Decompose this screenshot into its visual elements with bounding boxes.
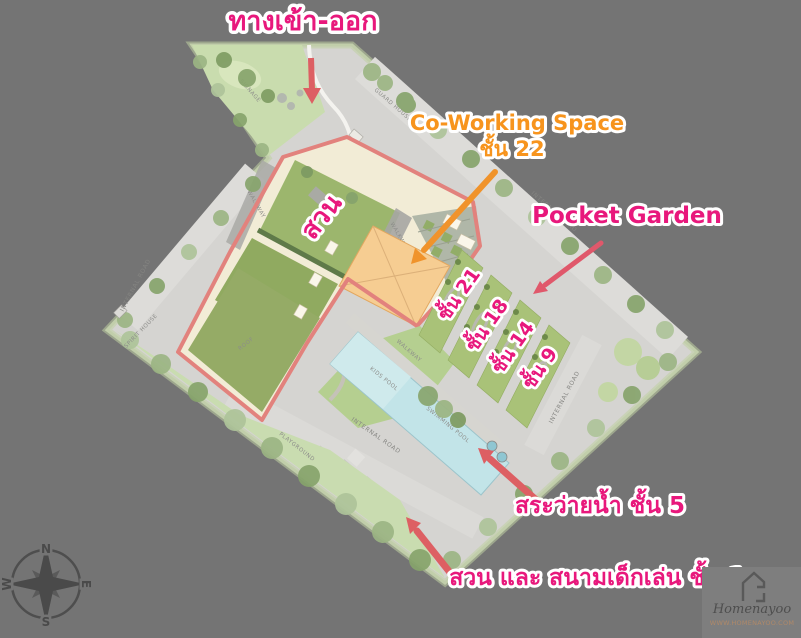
coworking-label-line2: ชั้น 22 (479, 133, 544, 161)
tree (346, 192, 358, 204)
compass-main-star (7, 545, 85, 623)
garden-playground-annotation: สวน และ สนามเด็กเล่น ชั้น 1 (449, 560, 745, 591)
compass-north: N (41, 542, 51, 556)
watermark-brand: Homenayoo (712, 602, 791, 617)
compass-west: W (0, 577, 14, 590)
watermark-url: WWW.HOMENAYOO.COM (710, 619, 794, 627)
tree (301, 166, 313, 178)
spa-circle (487, 441, 497, 451)
pocket-garden-label: Pocket Garden (532, 203, 722, 229)
coworking-label-line1: Co-Working Space (410, 111, 624, 135)
compass-south: S (42, 615, 51, 629)
spa-circle (497, 452, 507, 462)
site-plan-image: SIGNAGE GUARD HOUSE ROOF WALKWAY WALKWAY (0, 0, 801, 638)
entrance-label: ทางเข้า-ออก (229, 6, 378, 37)
site-plan-canvas: SIGNAGE GUARD HOUSE ROOF WALKWAY WALKWAY (0, 0, 801, 638)
pool-annotation: สระว่ายน้ำ ชั้น 5 (515, 488, 685, 519)
watermark: Homenayoo WWW.HOMENAYOO.COM (702, 567, 801, 638)
compass-rose: N S W E (0, 542, 93, 629)
compass-east: E (79, 580, 93, 588)
